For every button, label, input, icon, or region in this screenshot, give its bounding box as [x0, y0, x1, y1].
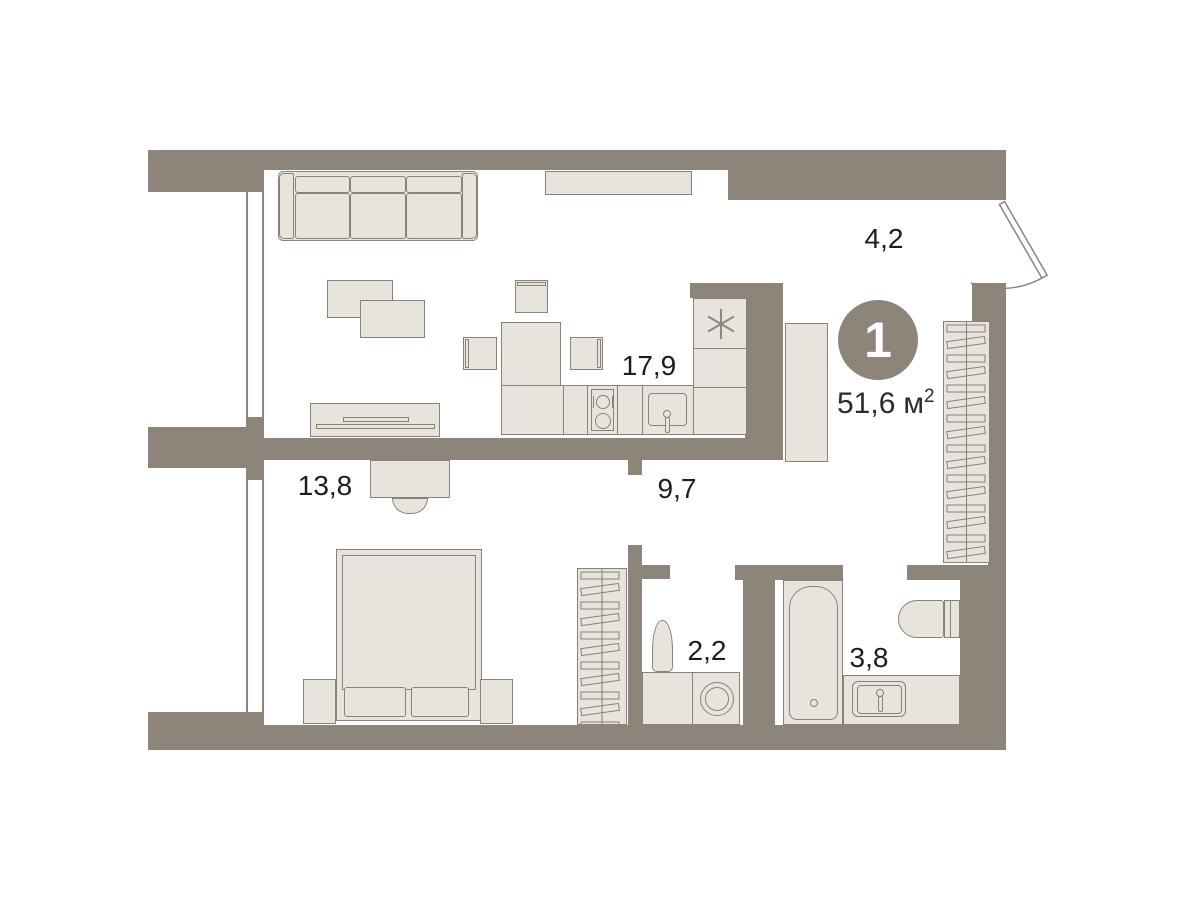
dining-chair [515, 280, 548, 313]
sofa-armrest [462, 173, 477, 239]
nightstand [303, 679, 336, 724]
room-area-label: 9,7 [658, 473, 697, 505]
washer-drum-icon [705, 687, 729, 711]
wall-right-bottom [960, 565, 1006, 725]
kitchen-sink [642, 385, 694, 435]
sofa-back-cushion [295, 176, 350, 193]
room-count-value: 1 [864, 311, 892, 369]
tv-icon [316, 424, 435, 429]
bedroom-wardrobe [577, 568, 627, 725]
wall-divider [263, 438, 783, 460]
kitchen-counter [617, 385, 643, 435]
chair-back [597, 339, 601, 368]
hall-closet [785, 323, 828, 462]
kitchen-cabinet [693, 348, 747, 388]
room-count-badge: 1 [838, 300, 918, 380]
sofa-seat-cushion [406, 193, 462, 239]
hall-wardrobe [943, 321, 990, 563]
dining-table [501, 322, 561, 386]
stove-panel [591, 389, 614, 431]
wall-cabinet [545, 171, 692, 195]
drain-icon [810, 699, 818, 707]
toilet [898, 600, 944, 638]
wall-bottom [262, 725, 1006, 750]
chair-back [517, 282, 546, 286]
desk-chair [392, 498, 428, 514]
bed-blanket [342, 555, 476, 690]
total-area-unit: м [903, 387, 924, 420]
chair-back [465, 339, 469, 368]
room-area-label: 13,8 [298, 470, 353, 502]
door-swing-arc [971, 277, 1045, 289]
laundry-counter [642, 672, 693, 725]
kitchen-counter [563, 385, 588, 435]
sofa-seat-cushion [295, 193, 350, 239]
toilet-tank-line [950, 601, 951, 637]
tv-icon [343, 417, 409, 422]
wall-kitchen-top [690, 283, 783, 298]
room-area-label: 17,9 [622, 350, 677, 382]
bathtub [783, 580, 843, 725]
wall-left-top [148, 150, 264, 192]
wall-bedroom-door-stub [628, 460, 642, 475]
tv-stand [310, 403, 440, 437]
burner-bracket-icon [593, 396, 594, 408]
bed [336, 549, 482, 721]
dining-chair [570, 337, 603, 370]
faucet-icon [665, 417, 670, 433]
sofa-back-cushion [406, 176, 462, 193]
kitchen-cabinet [693, 387, 747, 435]
burner-icon [595, 413, 611, 429]
room-area-label: 3,8 [850, 642, 889, 674]
fridge [693, 298, 747, 349]
wall-laundry-stub [628, 565, 670, 579]
wall-laundry-bathroom [743, 580, 775, 725]
room-area-label: 4,2 [865, 223, 904, 255]
pillow [411, 687, 469, 717]
total-area-sup: 2 [924, 386, 935, 407]
total-area-value: 51,6 [837, 387, 895, 420]
window-living [246, 192, 264, 417]
sofa-seat-cushion [350, 193, 406, 239]
wall-right-thin [988, 323, 1006, 567]
dining-chair [463, 337, 497, 370]
fridge-snowflake-icon [704, 307, 738, 341]
wall-toilet-top [907, 565, 960, 580]
faucet-icon [878, 696, 883, 712]
wall-kitchen-right [745, 298, 783, 460]
sofa-back-cushion [350, 176, 406, 193]
burner-bracket-icon [612, 396, 613, 408]
bathroom-sink [852, 681, 906, 717]
wall-bottom-left [148, 712, 264, 750]
entrance-door [958, 188, 1060, 298]
desk [370, 460, 450, 498]
nightstand [480, 679, 513, 724]
washing-machine [692, 672, 740, 725]
wall-bathroom-top [735, 565, 843, 580]
door-leaf [999, 202, 1047, 279]
kitchen-counter [501, 385, 564, 435]
coffee-table [360, 300, 425, 338]
iron [652, 620, 673, 672]
toilet-tank [944, 600, 960, 638]
floor-plan: 17,9 4,2 13,8 9,7 2,2 3,8 1 51,6м2 [0, 0, 1200, 897]
wall-window-stub [246, 417, 264, 480]
room-area-label: 2,2 [688, 635, 727, 667]
sofa-armrest [279, 173, 294, 239]
burner-icon [596, 395, 610, 409]
pillow [344, 687, 406, 717]
window-bedroom [246, 480, 264, 712]
total-area-label: 51,6м2 [837, 386, 935, 421]
stove [587, 385, 618, 435]
sofa [278, 171, 478, 241]
